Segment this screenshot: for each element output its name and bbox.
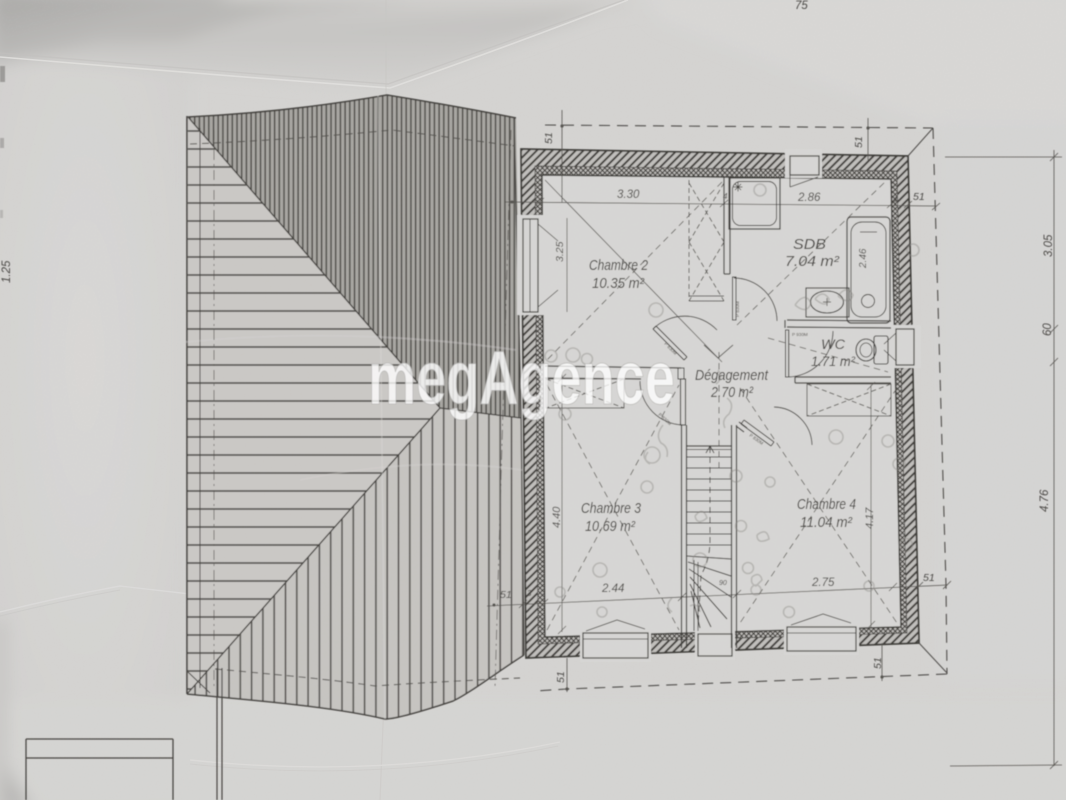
svg-text:7.04 m²: 7.04 m² — [785, 254, 840, 270]
svg-text:SDB: SDB — [793, 237, 826, 253]
svg-text:10.35 m²: 10.35 m² — [592, 276, 645, 292]
svg-text:3.05: 3.05 — [1043, 234, 1055, 257]
svg-text:1.71 m²: 1.71 m² — [811, 354, 855, 369]
svg-text:Chambre 3: Chambre 3 — [581, 501, 641, 517]
svg-text:4: 4 — [723, 192, 728, 201]
svg-text:4: 4 — [893, 195, 898, 204]
svg-text:P 930M: P 930M — [792, 332, 808, 337]
svg-text:2.70 m²: 2.70 m² — [710, 384, 754, 401]
svg-text:WC: WC — [821, 337, 845, 352]
svg-text:75: 75 — [795, 0, 808, 12]
svg-text:megAgence: megAgence — [368, 336, 675, 421]
svg-text:51: 51 — [543, 132, 555, 144]
svg-text:Dégagement: Dégagement — [695, 367, 769, 384]
svg-text:51: 51 — [923, 572, 935, 584]
svg-text:4.17: 4.17 — [864, 507, 876, 529]
svg-text:51: 51 — [913, 191, 925, 203]
svg-text:3.30: 3.30 — [617, 189, 640, 201]
svg-text:90: 90 — [719, 580, 727, 587]
svg-text:51: 51 — [872, 657, 884, 669]
svg-text:4.40: 4.40 — [551, 506, 563, 528]
svg-text:Chambre 4: Chambre 4 — [797, 497, 856, 513]
svg-text:51: 51 — [555, 671, 567, 683]
svg-text:10.69 m²: 10.69 m² — [585, 519, 636, 535]
svg-text:51: 51 — [500, 589, 512, 601]
svg-text:60: 60 — [1042, 323, 1054, 336]
svg-text:2.75: 2.75 — [811, 577, 835, 589]
svg-text:2.44: 2.44 — [601, 583, 624, 595]
svg-text:2.86: 2.86 — [797, 192, 821, 204]
svg-text:11.04 m²: 11.04 m² — [800, 515, 853, 531]
svg-text:3: 3 — [527, 589, 532, 598]
svg-text:P 830M: P 830M — [735, 301, 740, 317]
svg-text:Chambre 2: Chambre 2 — [589, 258, 648, 274]
svg-text:4.76: 4.76 — [1039, 489, 1051, 512]
svg-text:2.46: 2.46 — [858, 248, 869, 269]
svg-text:1.25: 1.25 — [1, 260, 13, 283]
svg-text:51: 51 — [853, 136, 865, 148]
svg-text:3.25: 3.25 — [554, 241, 566, 262]
